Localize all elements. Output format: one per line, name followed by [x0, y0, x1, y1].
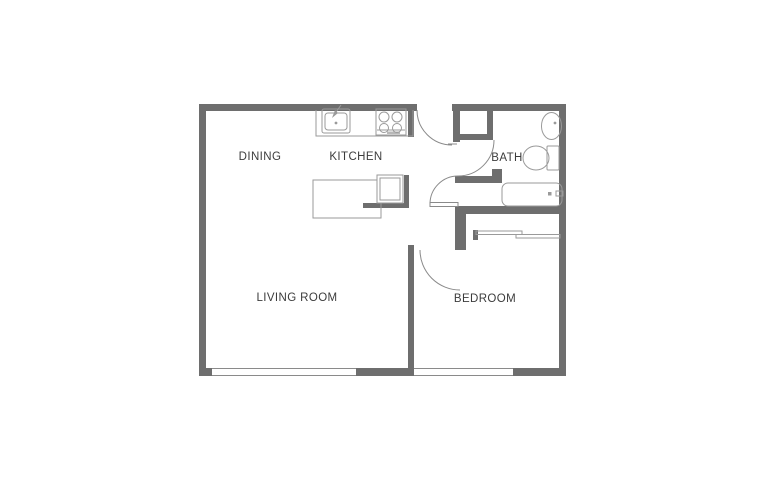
kitchen-label: KITCHEN — [329, 151, 382, 163]
stove — [376, 109, 406, 135]
bedroom-label: BEDROOM — [454, 293, 516, 305]
kitchen-sink — [322, 105, 350, 133]
toilet — [523, 146, 559, 170]
bathtub — [502, 183, 563, 206]
floor-plan: DINING KITCHEN BATH LIVING ROOM BEDROOM — [0, 0, 768, 480]
bath-door — [458, 140, 494, 176]
kitchen-island — [313, 180, 381, 218]
bedroom-closet-sliding-doors — [476, 231, 560, 238]
bedroom-door — [420, 250, 460, 290]
hall-door — [430, 176, 458, 207]
bath-label: BATH — [491, 152, 522, 164]
dining-label: DINING — [239, 151, 282, 163]
entry-door — [417, 110, 457, 145]
fixtures-layer — [0, 0, 768, 480]
pedestal-sink — [542, 113, 562, 140]
dishwasher — [377, 175, 403, 203]
living-room-label: LIVING ROOM — [256, 292, 337, 304]
